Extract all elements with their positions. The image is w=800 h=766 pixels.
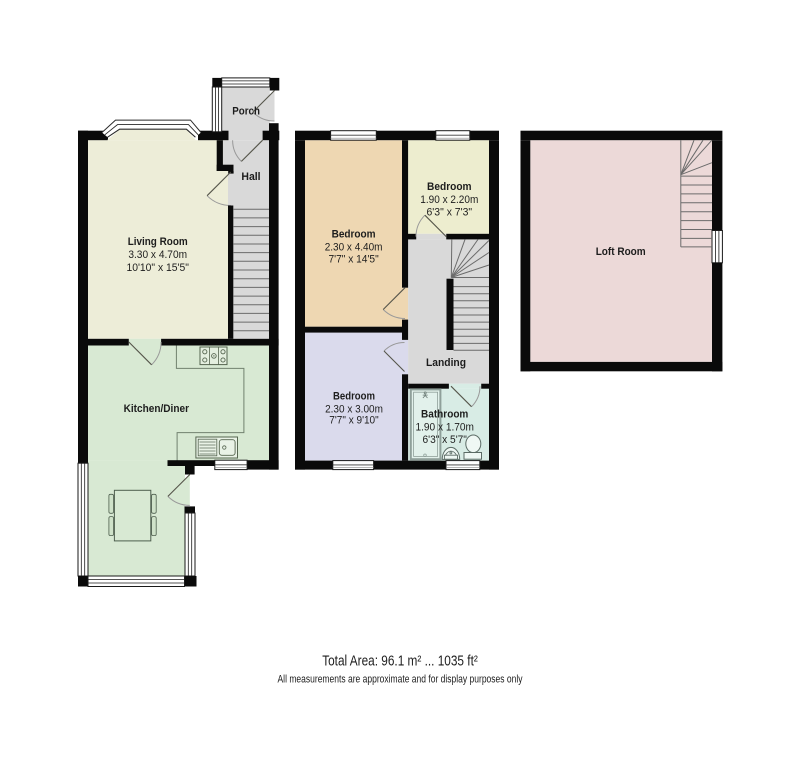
svg-text:All measurements are approxima: All measurements are approximate and for… xyxy=(278,674,523,686)
svg-text:2.30 x 3.00m: 2.30 x 3.00m xyxy=(325,404,383,416)
svg-text:3.30 x 4.70m: 3.30 x 4.70m xyxy=(128,249,187,261)
svg-text:7'7" x 14'5": 7'7" x 14'5" xyxy=(329,254,379,266)
svg-text:Hall: Hall xyxy=(241,171,260,183)
svg-text:Bedroom: Bedroom xyxy=(333,391,375,403)
svg-text:Bedroom: Bedroom xyxy=(332,229,376,241)
svg-text:Kitchen/Diner: Kitchen/Diner xyxy=(124,403,190,415)
svg-text:1.90 x 2.20m: 1.90 x 2.20m xyxy=(420,194,478,206)
svg-text:Porch: Porch xyxy=(232,106,260,118)
svg-text:Loft Room: Loft Room xyxy=(596,246,646,258)
svg-text:Landing: Landing xyxy=(426,357,466,369)
svg-text:Bathroom: Bathroom xyxy=(421,409,468,421)
svg-text:2.30 x 4.40m: 2.30 x 4.40m xyxy=(325,241,383,253)
svg-text:Living Room: Living Room xyxy=(128,236,188,248)
svg-text:Total Area: 96.1 m² ... 1035 f: Total Area: 96.1 m² ... 1035 ft² xyxy=(322,654,478,670)
svg-text:6'3" x 5'7": 6'3" x 5'7" xyxy=(423,434,467,446)
svg-text:1.90 x 1.70m: 1.90 x 1.70m xyxy=(415,421,474,433)
svg-text:6'3" x 7'3": 6'3" x 7'3" xyxy=(427,206,473,218)
svg-text:10'10" x 15'5": 10'10" x 15'5" xyxy=(126,262,189,274)
svg-text:Bedroom: Bedroom xyxy=(427,181,472,193)
svg-text:7'7" x 9'10": 7'7" x 9'10" xyxy=(329,415,378,427)
